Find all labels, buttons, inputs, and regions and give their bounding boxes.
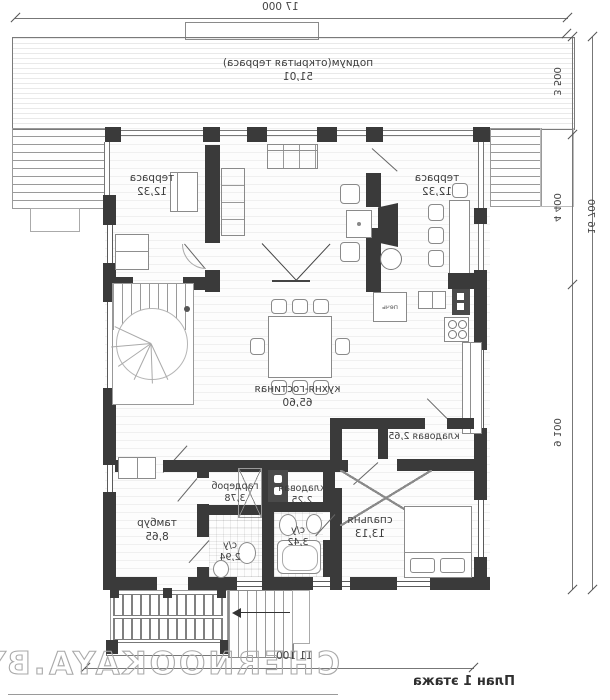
- rail-right: [478, 142, 484, 270]
- wall: [430, 577, 490, 590]
- room-area: 3,78: [224, 493, 245, 504]
- burner: [448, 330, 457, 339]
- wall: [330, 418, 425, 429]
- room-name: кухня-гостиная: [255, 383, 341, 395]
- stair-pivot: [184, 306, 190, 312]
- wall: [103, 195, 116, 225]
- dimension-line-top: [15, 18, 568, 19]
- bed-line: [404, 552, 472, 553]
- watermark-underline: [8, 694, 338, 695]
- porch-post: [163, 588, 172, 598]
- porch-post: [217, 588, 226, 598]
- wall: [197, 472, 209, 478]
- room-label-bath-small: с/у 2,94: [180, 540, 280, 565]
- room-label-podium: подиум(открытая терраса) 51,01: [148, 57, 448, 84]
- room-name: кладовая: [413, 431, 460, 442]
- wall: [188, 577, 237, 590]
- room-area: 65,60: [282, 397, 312, 409]
- chair: [250, 338, 265, 355]
- chair: [428, 204, 444, 221]
- room-label-pantry-upper: кладовая 2,65: [374, 431, 474, 443]
- wall: [474, 428, 487, 500]
- corner-couch: [221, 168, 245, 236]
- wall-post: [473, 127, 490, 142]
- grill-bowl: [380, 248, 402, 270]
- fireplace-base: [272, 280, 310, 282]
- room-name: с/у: [223, 540, 237, 551]
- chair: [335, 338, 350, 355]
- room-name: подиум(открытая терраса): [223, 57, 373, 69]
- burner: [448, 320, 457, 329]
- room-label-terrace-right: терраса 12,32: [387, 172, 487, 199]
- wall-post: [203, 127, 220, 142]
- room-name: кладовая: [278, 483, 325, 494]
- direction-arrow-head: [232, 608, 241, 618]
- room-area: 2,65: [388, 431, 409, 442]
- podium-steps-right: [490, 128, 542, 207]
- room-area: 2,25: [291, 495, 312, 506]
- grill-unit: [378, 203, 398, 247]
- bench-line: [115, 251, 149, 252]
- room-label-terrace-left: терраса 12,32: [102, 172, 202, 199]
- direction-arrow-shaft: [240, 612, 290, 613]
- podium-step-platform: [30, 208, 80, 232]
- wall-terrace-right-divider: [366, 173, 381, 207]
- room-area: 51,01: [283, 71, 313, 83]
- room-area: 12,32: [422, 186, 452, 198]
- room-name: с/у: [291, 525, 305, 536]
- wall: [270, 577, 313, 590]
- terrace-left-bench: [115, 234, 149, 270]
- room-name: терраса: [415, 172, 460, 184]
- room-area: 12,32: [137, 186, 167, 198]
- room-area: 3,42: [287, 537, 308, 548]
- terrace-right-table: [449, 200, 470, 280]
- wall: [448, 273, 480, 289]
- wall: [330, 429, 342, 462]
- room-name: терраса: [130, 172, 175, 184]
- chair: [271, 299, 287, 314]
- chair: [428, 250, 444, 267]
- dimension-right-total: 16 700: [585, 199, 596, 234]
- room-name: спальня: [347, 514, 392, 526]
- stove-pech-label: печь: [373, 303, 407, 311]
- appliance-window: [457, 303, 464, 310]
- room-area: 13,13: [355, 528, 385, 540]
- wall-post: [474, 208, 487, 224]
- steps-side: [292, 590, 310, 644]
- window-bottom: [397, 581, 430, 587]
- wall: [350, 577, 397, 590]
- wall: [197, 567, 209, 590]
- pillow: [440, 558, 465, 573]
- sofa-three-seat: [267, 144, 318, 169]
- burner: [458, 320, 467, 329]
- plan-title: План 1 этажа: [408, 674, 520, 689]
- room-area: 2,94: [219, 552, 240, 563]
- window-left: [107, 225, 113, 263]
- wall-post: [366, 127, 383, 142]
- pillow: [410, 558, 435, 573]
- dimension-seg-terrace: 4 400: [551, 193, 562, 222]
- dimension-line-inner: [572, 37, 573, 590]
- cabinet-divider: [137, 457, 138, 479]
- window-left: [107, 465, 113, 492]
- wall-post: [317, 127, 337, 142]
- dimension-top-width: 17 000: [262, 1, 299, 13]
- chair: [313, 299, 329, 314]
- burner: [458, 330, 467, 339]
- room-label-pantry-small: кладовая 2,25: [252, 483, 352, 508]
- chair: [292, 299, 308, 314]
- wall: [447, 418, 474, 429]
- room-area: 8,65: [145, 531, 168, 543]
- floor-plan: 17 000 подиум(открытая терраса) 51,01: [0, 0, 610, 700]
- armchair: [340, 242, 360, 262]
- armchair: [340, 184, 360, 204]
- watermark: CHERNOOKAYA.BY: [4, 646, 340, 682]
- room-name: тамбур: [137, 517, 177, 529]
- terrace-top-rail: [105, 130, 490, 136]
- podium-steps-left: [12, 128, 107, 209]
- dimension-line-outer: [592, 37, 593, 590]
- room-label-kitchen-living: кухня-гостиная 65,60: [240, 383, 355, 410]
- cabinet-divider: [432, 291, 433, 309]
- boiler-dial: [274, 475, 282, 483]
- table-mark: [357, 222, 361, 226]
- sofa-back-line: [267, 150, 318, 151]
- dimension-seg-house: 9 100: [551, 418, 562, 447]
- porch-post: [110, 588, 119, 598]
- window-right: [478, 500, 484, 557]
- wall-post: [105, 127, 121, 142]
- porch-balusters: [113, 618, 223, 640]
- appliance-window: [457, 293, 464, 300]
- wall-terrace-left-divider: [205, 145, 220, 243]
- dimension-seg-podium: 3 500: [551, 67, 562, 96]
- chair: [428, 227, 444, 244]
- wall-post: [247, 127, 267, 142]
- dining-table: [268, 316, 332, 378]
